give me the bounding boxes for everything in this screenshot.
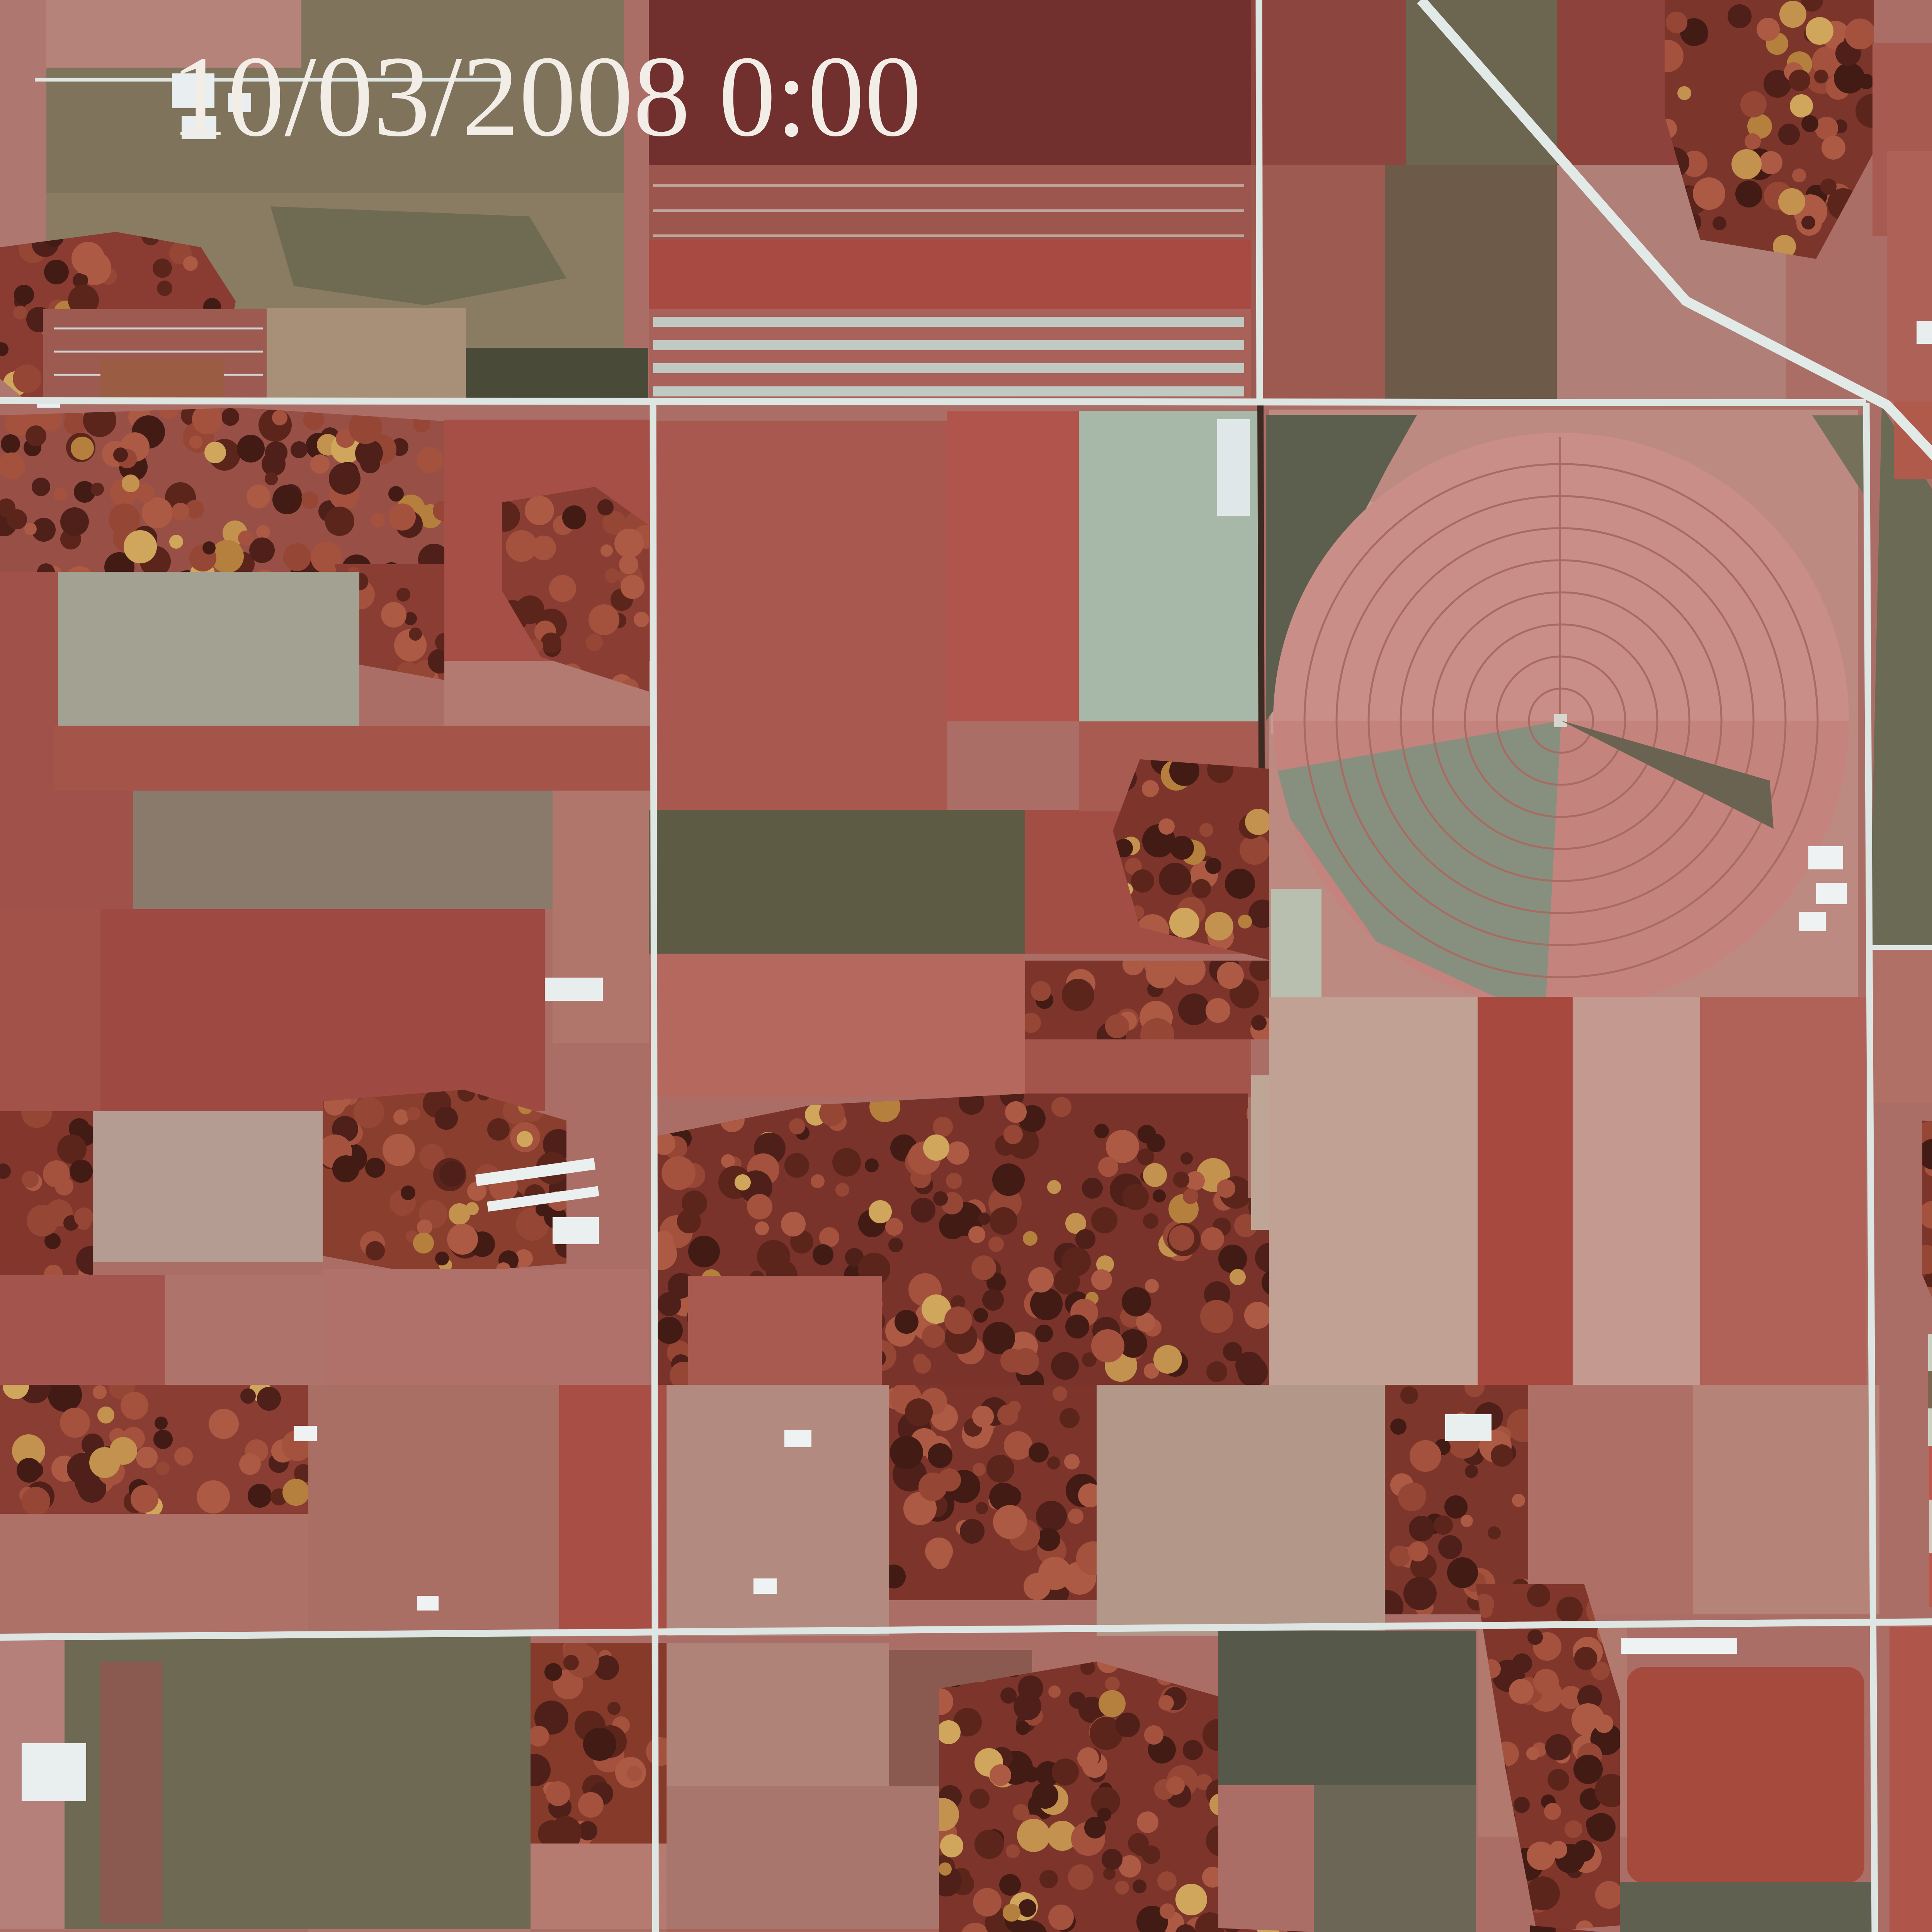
svg-text:10/03/2008 0:00: 10/03/2008 0:00 <box>170 32 922 160</box>
